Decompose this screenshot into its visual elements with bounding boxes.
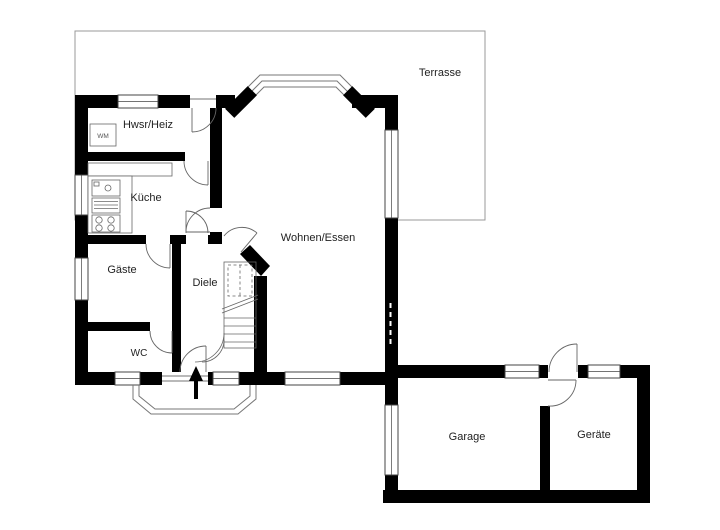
kitchen-stove [92,215,120,232]
floor-plan-drawing: WM Terrasse Hwsr/Heiz Küche Gäste Diele … [0,0,720,530]
window-garage-west [385,405,398,475]
window-wohnen-south [285,372,340,385]
window-terrace-door [385,130,398,218]
window-garage-north [505,365,539,378]
room-label-gaeste: Gäste [107,264,136,276]
room-label-garage: Garage [449,431,486,443]
room-label-diele: Diele [192,277,217,289]
kitchen-dishwasher [92,198,120,213]
room-label-geraete: Geräte [577,429,611,441]
room-label-wc: WC [131,348,148,359]
room-label-terrasse: Terrasse [419,67,461,79]
window-gaeste-west [75,258,88,300]
window-wc [115,372,140,385]
window-hwsr-top [118,95,158,108]
room-label-kueche: Küche [130,192,161,204]
room-label-wohnen: Wohnen/Essen [281,232,355,244]
washing-machine: WM [90,124,116,146]
kitchen-sink [92,180,120,196]
window-geraete-north [588,365,620,378]
room-label-hwsr: Hwsr/Heiz [123,119,173,131]
window-kueche-west [75,175,88,215]
floor-plan: WM Terrasse Hwsr/Heiz Küche Gäste Diele … [0,0,720,530]
window-entry-side [213,372,239,385]
washing-machine-label: WM [97,133,109,140]
